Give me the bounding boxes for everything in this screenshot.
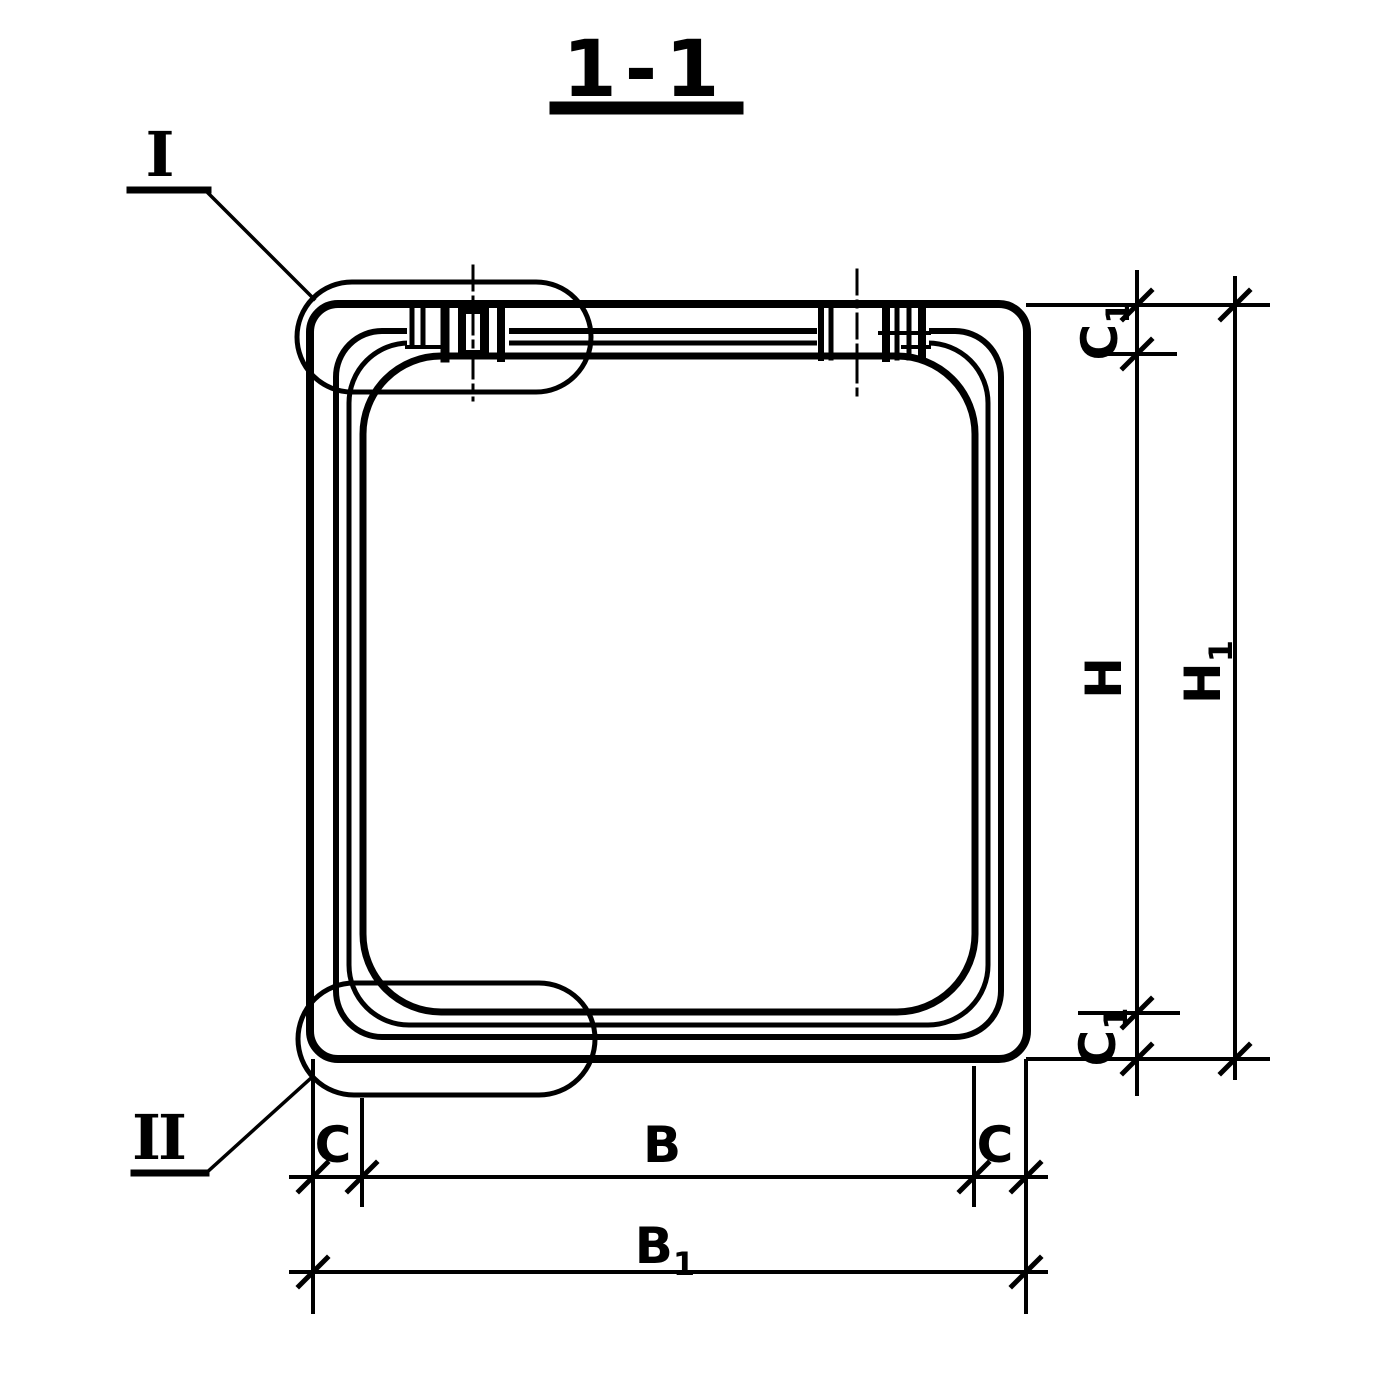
detail-callout-bottom: II [132,1079,310,1174]
detail-leader-line [207,192,314,299]
detail-label-2: II [132,1101,185,1174]
vertical-dimensions: C1 H H1 C1 [1028,272,1268,1094]
dim-label-b1: B1 [635,1217,695,1283]
top-slab-joint-right [817,270,929,397]
dim-label-c-right: C [977,1116,1014,1174]
dim-label-c1-top: C1 [1071,302,1137,361]
inner-opening-contour [363,356,975,1012]
dim-label-h1: H1 [1174,640,1240,704]
dim-label-b: B [643,1116,681,1174]
box-section-contours [310,304,1027,1059]
outer-contour [310,304,1027,1059]
detail-callout-top: I [130,118,314,299]
dim-label-c-left: C [315,1116,352,1174]
dim-label-c1-bottom: C1 [1069,1008,1135,1067]
horizontal-dimensions: C B C B1 [291,1061,1046,1312]
technical-drawing-canvas: 1-1 I I [0,0,1374,1379]
top-slab-joint-left [407,266,509,400]
detail-label-1: I [145,118,174,191]
wall-middle-line-inner [349,343,988,1025]
wall-middle-line-outer [336,331,1001,1037]
dim-label-h: H [1075,657,1133,699]
detail-leader-line [205,1079,310,1174]
